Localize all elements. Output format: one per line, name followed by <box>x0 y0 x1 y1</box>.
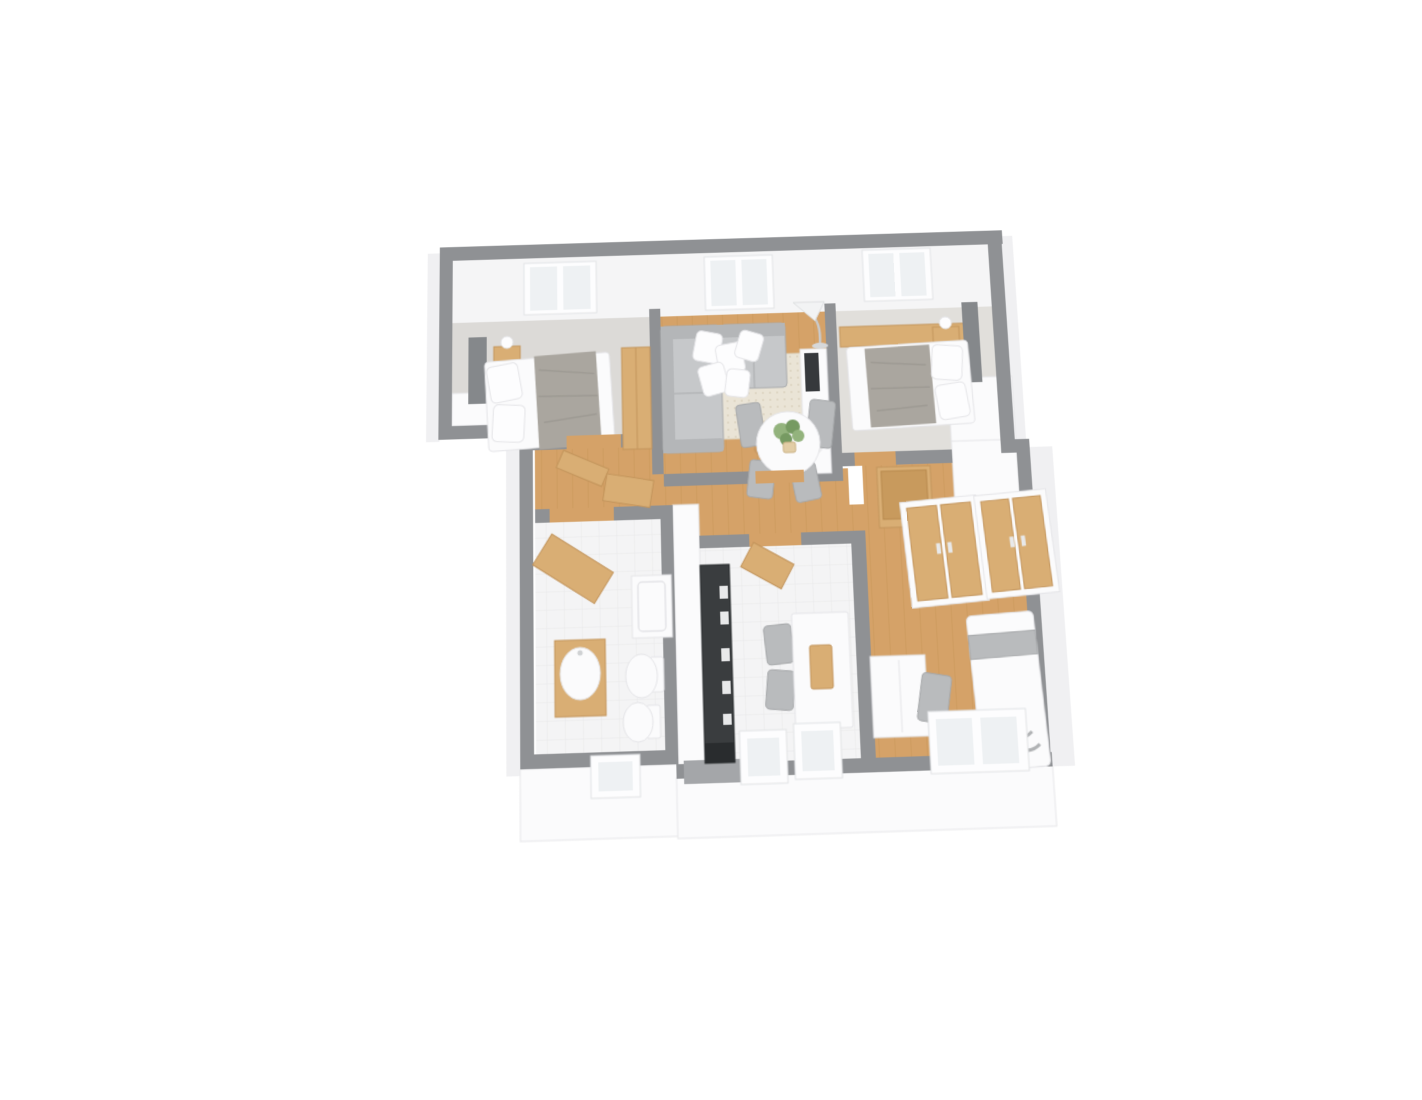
window-bathroom <box>591 754 641 798</box>
oven-column <box>705 742 735 763</box>
west-wall-bathroom <box>519 437 534 769</box>
pillow <box>492 405 526 443</box>
duvet <box>864 344 936 427</box>
appliance-front <box>721 648 730 661</box>
doorway-threshold <box>567 434 622 449</box>
shower-box <box>631 575 672 638</box>
kitchen-north-wall-a <box>699 534 749 548</box>
window-bedroom1 <box>524 261 597 315</box>
pillow <box>931 345 962 381</box>
plant-pot <box>783 442 796 453</box>
tv-screen <box>804 353 820 392</box>
window-pane <box>868 253 895 297</box>
window-kitchen-1 <box>739 730 788 785</box>
bathroom-north-wall-b <box>614 505 673 520</box>
floor-plan-render <box>0 0 1422 1100</box>
bidet-bowl <box>623 702 653 743</box>
west-wall-bedroom1 <box>438 261 452 440</box>
window-pane <box>530 266 557 310</box>
bidet <box>623 702 661 743</box>
window-pane <box>563 265 591 309</box>
kitchen-counter-run <box>700 564 735 763</box>
appliance-front <box>719 586 728 599</box>
wardrobe-2 <box>974 489 1060 599</box>
gray-band <box>968 630 1038 660</box>
kitchen-north-wall-b <box>801 531 851 545</box>
vanity-sink <box>555 639 607 717</box>
duvet <box>534 351 602 449</box>
facade-left-bottom <box>506 435 521 776</box>
sphere-lamp <box>939 317 952 329</box>
pillow <box>934 381 971 420</box>
appliance-front <box>720 611 729 624</box>
window-bedroom2 <box>862 248 933 301</box>
window-living <box>704 255 774 310</box>
sofa-armrest <box>663 438 724 453</box>
stool <box>765 669 795 710</box>
doorway-threshold <box>854 451 896 466</box>
cushion <box>724 368 750 398</box>
window-pane <box>741 259 768 305</box>
toilet-bowl <box>625 654 657 699</box>
floor-plan-canvas <box>0 0 1422 1100</box>
window-bedroom3 <box>928 708 1030 773</box>
cutting-board <box>810 645 834 689</box>
toilet <box>625 653 664 698</box>
doorway-threshold <box>550 507 614 523</box>
window-pane <box>899 252 926 296</box>
bedroom2-south-wall-b <box>895 449 952 464</box>
window-kitchen-2 <box>793 722 842 779</box>
stool <box>763 623 795 665</box>
appliance-front <box>722 681 731 694</box>
pillow <box>486 362 523 404</box>
divider-corner <box>831 453 844 481</box>
bedroom2-south-wall-a <box>842 453 855 467</box>
sphere-lamp <box>501 336 513 348</box>
appliance-front <box>723 714 732 725</box>
doorway-threshold <box>755 470 804 484</box>
double-bed <box>846 340 975 431</box>
headboard-panel <box>468 337 486 404</box>
bathroom-north-wall-a <box>535 509 550 523</box>
window-pane <box>710 260 736 306</box>
